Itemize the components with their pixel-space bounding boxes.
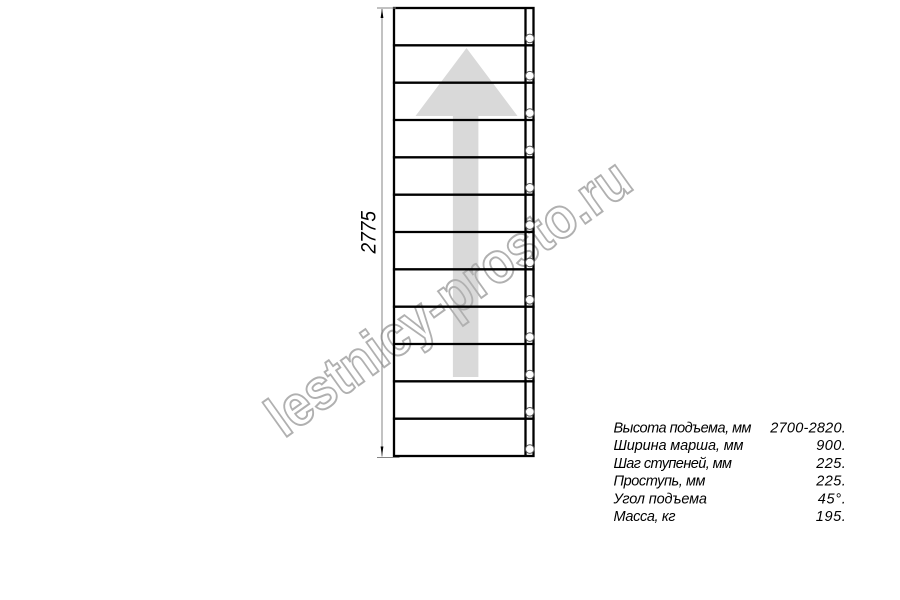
svg-text:Проступь, мм: Проступь, мм xyxy=(614,474,706,490)
svg-text:Угол подъема: Угол подъема xyxy=(613,491,708,507)
svg-text:Масса, кг: Масса, кг xyxy=(614,509,676,525)
svg-text:225.: 225. xyxy=(815,474,846,490)
svg-text:2775: 2775 xyxy=(357,210,381,254)
svg-text:900.: 900. xyxy=(816,438,846,454)
svg-text:225.: 225. xyxy=(815,456,846,472)
svg-text:Ширина марша, мм: Ширина марша, мм xyxy=(614,438,744,454)
svg-text:45°.: 45°. xyxy=(818,491,846,507)
svg-text:Высота подъема, мм: Высота подъема, мм xyxy=(614,421,752,437)
svg-text:lestnicy-prosto.ru: lestnicy-prosto.ru xyxy=(254,146,643,450)
svg-text:2700-2820.: 2700-2820. xyxy=(769,421,846,437)
svg-text:195.: 195. xyxy=(816,509,846,525)
svg-text:Шаг ступеней, мм: Шаг ступеней, мм xyxy=(614,456,733,472)
